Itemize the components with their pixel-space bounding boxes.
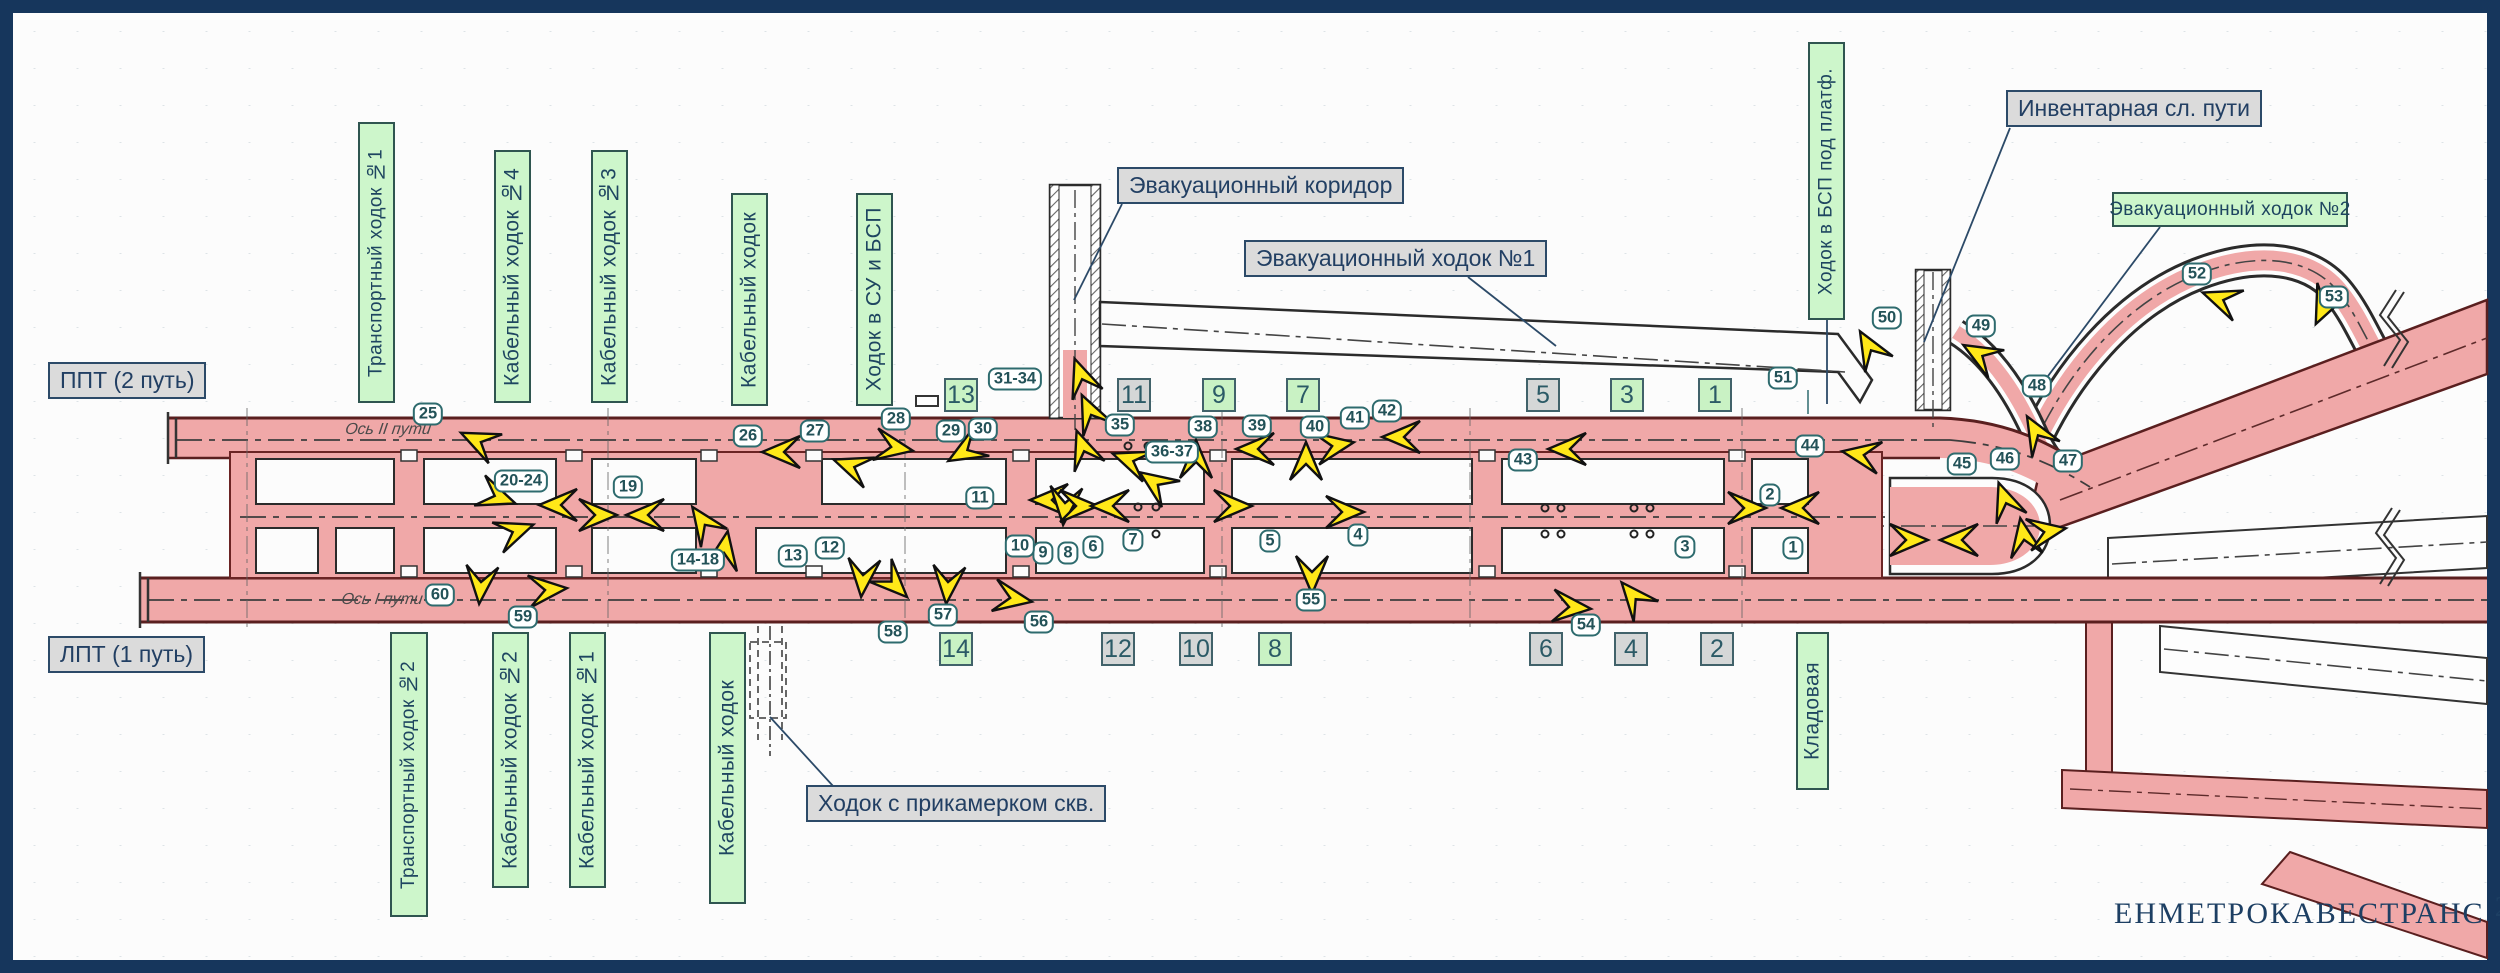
point-marker-14-18: 14-18 xyxy=(671,549,725,572)
point-marker-41: 41 xyxy=(1340,407,1370,430)
point-marker-46: 46 xyxy=(1990,448,2020,471)
callout-эвакуационный-коридор: Эвакуационный коридор xyxy=(1117,167,1404,204)
room-number-7: 7 xyxy=(1286,378,1320,412)
point-marker-60: 60 xyxy=(425,584,455,607)
point-marker-27: 27 xyxy=(800,420,830,443)
point-marker-53: 53 xyxy=(2319,286,2349,309)
room-number-9: 9 xyxy=(1202,378,1236,412)
point-marker-59: 59 xyxy=(508,606,538,629)
room-number-5: 5 xyxy=(1526,378,1560,412)
passage-label-ходок-в-су-и-бсп: Ходок в СУ и БСП xyxy=(856,193,893,406)
point-marker-13: 13 xyxy=(778,545,808,568)
point-marker-49: 49 xyxy=(1966,315,1996,338)
point-marker-4: 4 xyxy=(1347,524,1368,547)
point-marker-19: 19 xyxy=(613,476,643,499)
room-number-10: 10 xyxy=(1179,632,1213,666)
room-number-14: 14 xyxy=(939,632,973,666)
room-number-2: 2 xyxy=(1700,632,1734,666)
point-marker-43: 43 xyxy=(1508,449,1538,472)
point-marker-8: 8 xyxy=(1057,542,1078,565)
point-marker-30: 30 xyxy=(968,418,998,441)
passage-label-кабельный-ходок-4: Кабельный ходок №4 xyxy=(494,150,531,403)
point-marker-50: 50 xyxy=(1872,307,1902,330)
point-marker-52: 52 xyxy=(2182,263,2212,286)
point-marker-25: 25 xyxy=(413,403,443,426)
room-number-11: 11 xyxy=(1117,378,1151,412)
logo-text: ЕНМЕТРОКАВЕСТРАНС xyxy=(2114,897,2485,931)
passage-label-эвакуационный-ходок-2: Эвакуационный ходок №2 xyxy=(2112,192,2348,227)
passage-label-транспортный-ходок-1: Транспортный ходок №1 xyxy=(358,122,395,403)
callout-эвакуационный-ходок-1: Эвакуационный ходок №1 xyxy=(1244,240,1547,277)
point-marker-7: 7 xyxy=(1122,529,1143,552)
point-marker-29: 29 xyxy=(936,420,966,443)
point-marker-5: 5 xyxy=(1259,530,1280,553)
point-marker-35: 35 xyxy=(1105,414,1135,437)
logo-year: 2021 xyxy=(2495,891,2500,924)
point-marker-38: 38 xyxy=(1188,416,1218,439)
point-marker-44: 44 xyxy=(1795,435,1825,458)
passage-label-ходок-в-бсп-под-платф: Ходок в БСП под платф. xyxy=(1808,42,1845,320)
point-marker-36-37: 36-37 xyxy=(1145,441,1199,464)
point-marker-56: 56 xyxy=(1024,611,1054,634)
passage-label-кабельный-ходок-1: Кабельный ходок №1 xyxy=(569,632,606,888)
company-logo: ЕНМЕТРОКАВЕСТРАНС 2021 xyxy=(2128,852,2493,962)
callout-ппт-2-путь: ППТ (2 путь) xyxy=(48,362,206,399)
point-marker-1: 1 xyxy=(1782,537,1803,560)
track-axis-label-ось-i-пути: Ось I пути xyxy=(340,591,424,609)
point-marker-26: 26 xyxy=(733,425,763,448)
room-number-8: 8 xyxy=(1258,632,1292,666)
point-marker-55: 55 xyxy=(1296,589,1326,612)
room-number-1: 1 xyxy=(1698,378,1732,412)
point-marker-40: 40 xyxy=(1300,416,1330,439)
point-marker-54: 54 xyxy=(1571,614,1601,637)
point-marker-3: 3 xyxy=(1674,536,1695,559)
room-number-12: 12 xyxy=(1101,632,1135,666)
point-marker-47: 47 xyxy=(2053,450,2083,473)
callout-лпт-1-путь: ЛПТ (1 путь) xyxy=(48,636,205,673)
point-marker-48: 48 xyxy=(2022,375,2052,398)
point-marker-57: 57 xyxy=(928,604,958,627)
passage-label-кабельный-ходок-3: Кабельный ходок №3 xyxy=(591,150,628,403)
callout-инвентарная-сл-пути: Инвентарная сл. пути xyxy=(2006,90,2262,127)
point-marker-9: 9 xyxy=(1032,542,1053,565)
point-marker-10: 10 xyxy=(1005,535,1035,558)
room-number-4: 4 xyxy=(1614,632,1648,666)
room-number-3: 3 xyxy=(1610,378,1644,412)
point-marker-58: 58 xyxy=(878,621,908,644)
point-marker-12: 12 xyxy=(815,537,845,560)
point-marker-42: 42 xyxy=(1372,400,1402,423)
passage-label-кабельный-ходок: Кабельный ходок xyxy=(731,193,768,406)
callout-ходок-с-прикамерком-скв: Ходок с прикамерком скв. xyxy=(806,785,1106,822)
point-marker-6: 6 xyxy=(1082,536,1103,559)
passage-label-кабельный-ходок-2: Кабельный ходок №2 xyxy=(492,632,529,888)
point-marker-20-24: 20-24 xyxy=(494,470,548,493)
point-marker-28: 28 xyxy=(881,408,911,431)
point-marker-2: 2 xyxy=(1759,484,1780,507)
point-marker-39: 39 xyxy=(1242,415,1272,438)
passage-label-транспортный-ходок-2: Транспортный ходок №2 xyxy=(390,632,428,917)
passage-label-кабельный-ходок: Кабельный ходок xyxy=(709,632,746,904)
point-marker-51: 51 xyxy=(1768,367,1798,390)
tunnel-scheme-page: ЕНМЕТРОКАВЕСТРАНС 2021 ППТ (2 путь)ЛПТ (… xyxy=(0,0,2500,973)
point-marker-45: 45 xyxy=(1947,453,1977,476)
point-marker-11: 11 xyxy=(965,487,994,510)
point-marker-31-34: 31-34 xyxy=(988,368,1042,391)
room-number-13: 13 xyxy=(944,378,978,412)
room-number-6: 6 xyxy=(1529,632,1563,666)
passage-label-кладовая: Кладовая xyxy=(1796,632,1829,790)
